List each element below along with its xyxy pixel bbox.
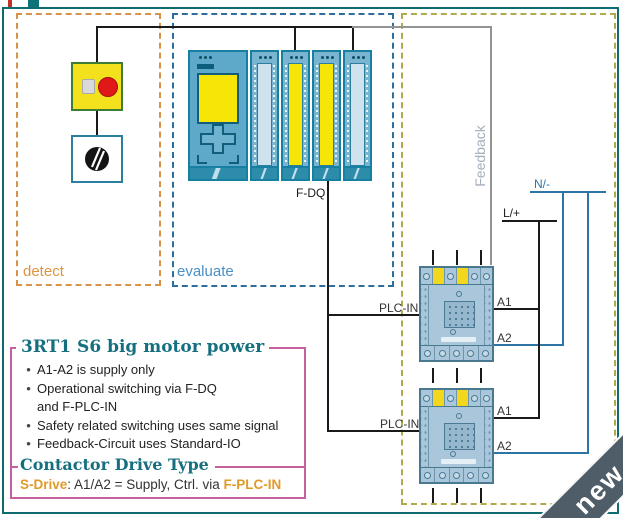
- wire-estop-drop: [96, 26, 98, 63]
- plc-assembly: [188, 50, 374, 181]
- feedback-circuit-label: Feedback: [472, 114, 488, 198]
- contactor-2: [419, 388, 494, 484]
- drive-highlight: F-PLC-IN: [224, 477, 282, 492]
- cpu-led-bar: [197, 64, 214, 69]
- contactor-contact-grid: [444, 423, 475, 450]
- power-stub: [456, 250, 458, 265]
- power-stub: [432, 250, 434, 265]
- module-front: [350, 63, 365, 166]
- estop-red-button-icon: [98, 77, 118, 97]
- lplus-label: L/+: [503, 206, 520, 220]
- bullet-marker: [20, 398, 37, 417]
- drive-desc: A1/A2 = Supply, Ctrl. via: [74, 477, 223, 492]
- estop-reset-key-icon: [82, 79, 95, 94]
- list-item: • Feedback-Circuit uses Standard-IO: [20, 435, 300, 454]
- module-base: [314, 166, 339, 179]
- io-module-1: [250, 50, 279, 181]
- module-base: [190, 166, 246, 179]
- new-ribbon-badge: new: [512, 402, 623, 518]
- terminal-dots: [304, 65, 306, 164]
- evaluate-region-label: evaluate: [177, 263, 234, 280]
- power-stub: [456, 488, 458, 503]
- vent-dots-icon: [321, 56, 324, 59]
- info-bullet-list: • A1-A2 is supply only • Operational swi…: [20, 361, 300, 454]
- drive-name: S-Drive: [20, 477, 67, 492]
- plcin-label-1: PLC-IN: [379, 301, 418, 315]
- bullet-marker: •: [20, 361, 37, 380]
- terminal-dots: [285, 65, 287, 164]
- drive-description: S-Drive: A1/A2 = Supply, Ctrl. via F-PLC…: [20, 477, 281, 492]
- slide-canvas: detect evaluate react Feedback F-DQ PLC-…: [0, 0, 623, 518]
- io-module-2: [343, 50, 372, 181]
- contactor-detail: [456, 291, 462, 297]
- wire-nminus-drop1: [562, 191, 564, 346]
- list-item: • A1-A2 is supply only: [20, 361, 300, 380]
- wire-module2-drop: [294, 26, 296, 51]
- failsafe-module-1: [281, 50, 310, 181]
- detect-region-label: detect: [23, 263, 64, 280]
- a2-terminal-label-1: A2: [497, 331, 512, 345]
- module-front: [319, 63, 334, 166]
- power-stub: [480, 488, 482, 503]
- cpu-display: [197, 73, 239, 124]
- terminal-dots: [273, 65, 275, 164]
- module-front: [257, 63, 272, 166]
- contactor-detail: [450, 329, 456, 335]
- contactor-top-terminals: [421, 390, 492, 407]
- power-stub: [432, 368, 434, 383]
- terminal-dots: [366, 65, 368, 164]
- power-stub: [456, 368, 458, 383]
- module-front: [288, 63, 303, 166]
- bullet-text: and F-PLC-IN: [37, 398, 117, 417]
- vent-dots-icon: [290, 56, 293, 59]
- contactor-side-rail: [484, 284, 492, 346]
- wire-estop-to-plc: [96, 26, 354, 28]
- list-item: and F-PLC-IN: [20, 398, 300, 417]
- contactor-top-terminals: [421, 268, 492, 285]
- power-stub: [480, 368, 482, 383]
- terminal-dots: [316, 65, 318, 164]
- contactor-1: [419, 266, 494, 362]
- cpu-bracket: [197, 155, 207, 164]
- contactor-bottom-terminals: [421, 467, 492, 482]
- a1-terminal-label-1: A1: [497, 295, 512, 309]
- contactor-side-rail: [484, 406, 492, 468]
- contactor-side-rail: [421, 284, 429, 346]
- wire-lplus-rail: [502, 220, 557, 222]
- vent-dots-icon: [199, 56, 202, 59]
- rotary-knob-icon: [82, 144, 112, 174]
- contactor-side-rail: [421, 406, 429, 468]
- module-base: [252, 166, 277, 179]
- wire-fdq-vertical: [327, 179, 329, 432]
- failsafe-module-2: [312, 50, 341, 181]
- terminal-dots: [347, 65, 349, 164]
- power-stub: [432, 488, 434, 503]
- wire-nminus-rail: [530, 191, 606, 193]
- cpu-keypad-icon: [200, 124, 236, 154]
- bullet-text: Operational switching via F-DQ: [37, 380, 217, 399]
- contactor-detail: [450, 451, 456, 457]
- bullet-text: A1-A2 is supply only: [37, 361, 155, 380]
- plcin-label-2: PLC-IN: [380, 417, 419, 431]
- module-base: [283, 166, 308, 179]
- list-item: • Operational switching via F-DQ: [20, 380, 300, 399]
- drive-type-section: Contactor Drive Type: [12, 455, 304, 477]
- contactor-contact-grid: [444, 301, 475, 328]
- terminal-dots: [335, 65, 337, 164]
- wire-feedback-vertical: [490, 26, 492, 265]
- power-stub: [480, 250, 482, 265]
- module-base: [345, 166, 370, 179]
- contactor-detail: [456, 413, 462, 419]
- nminus-label: N/-: [534, 177, 550, 191]
- vent-dots-icon: [352, 56, 355, 59]
- bullet-marker: •: [20, 435, 37, 454]
- fdq-label: F-DQ: [296, 186, 325, 200]
- bullet-text: Safety related switching uses same signa…: [37, 417, 278, 436]
- cpu-module: [188, 50, 248, 181]
- list-item: • Safety related switching uses same sig…: [20, 417, 300, 436]
- contactor-bottom-terminals: [421, 345, 492, 360]
- info-box-title: 3RT1 S6 big motor power: [16, 337, 269, 357]
- wire-feedback-horizontal: [352, 26, 492, 28]
- terminal-dots: [254, 65, 256, 164]
- cpu-bracket: [229, 155, 239, 164]
- wire-module4-drop: [352, 26, 354, 51]
- emergency-stop-device: [71, 62, 123, 111]
- contactor-nameplate: [441, 337, 476, 342]
- info-box: 3RT1 S6 big motor power • A1-A2 is suppl…: [10, 347, 306, 499]
- rotary-switch-device: [71, 135, 123, 183]
- vent-dots-icon: [259, 56, 262, 59]
- bullet-marker: •: [20, 417, 37, 436]
- new-ribbon-wrap: new: [493, 388, 623, 518]
- contactor-nameplate: [441, 459, 476, 464]
- wire-estop-to-switch: [96, 111, 98, 136]
- bullet-marker: •: [20, 380, 37, 399]
- bullet-text: Feedback-Circuit uses Standard-IO: [37, 435, 241, 454]
- drive-type-heading: Contactor Drive Type: [18, 455, 215, 474]
